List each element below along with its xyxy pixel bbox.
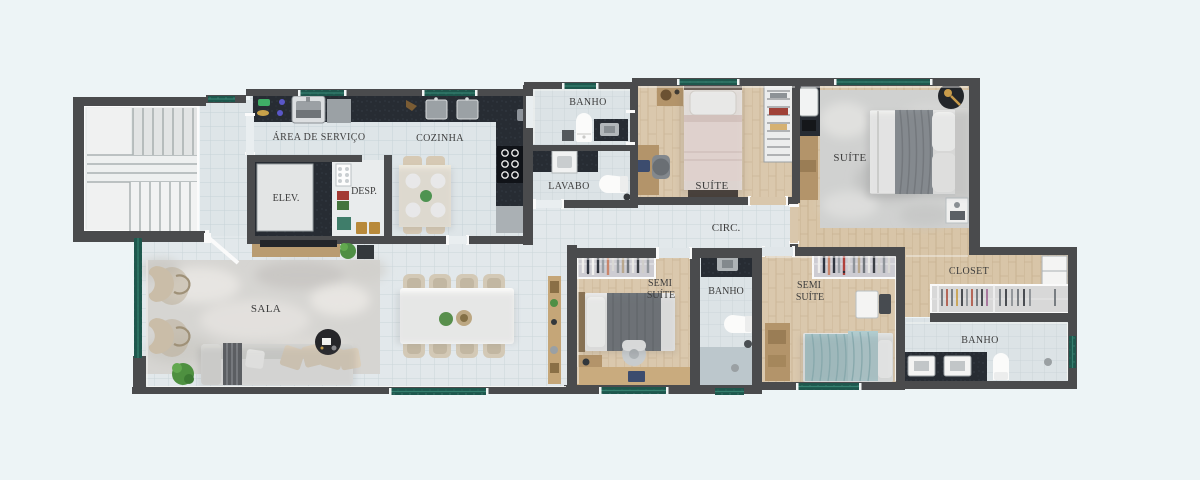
svg-text:LAVABO: LAVABO — [548, 181, 590, 192]
svg-text:BANHO: BANHO — [569, 97, 607, 108]
svg-text:SUÍTE: SUÍTE — [833, 152, 866, 164]
svg-text:BANHO: BANHO — [961, 335, 999, 346]
svg-text:SEMI: SEMI — [648, 278, 672, 289]
svg-text:ÁREA DE SERVIÇO: ÁREA DE SERVIÇO — [273, 131, 366, 143]
svg-text:SUÍTE: SUÍTE — [796, 291, 824, 303]
svg-text:ELEV.: ELEV. — [273, 193, 300, 204]
svg-text:CIRC.: CIRC. — [712, 222, 741, 234]
svg-text:BANHO: BANHO — [708, 286, 744, 297]
svg-text:SUÍTE: SUÍTE — [647, 289, 675, 301]
svg-text:SUÍTE: SUÍTE — [695, 180, 728, 192]
svg-text:SALA: SALA — [251, 303, 281, 315]
svg-text:CLOSET: CLOSET — [949, 266, 989, 277]
svg-text:DESP.: DESP. — [351, 186, 377, 197]
svg-text:SEMI: SEMI — [797, 280, 821, 291]
svg-text:COZINHA: COZINHA — [416, 133, 464, 144]
